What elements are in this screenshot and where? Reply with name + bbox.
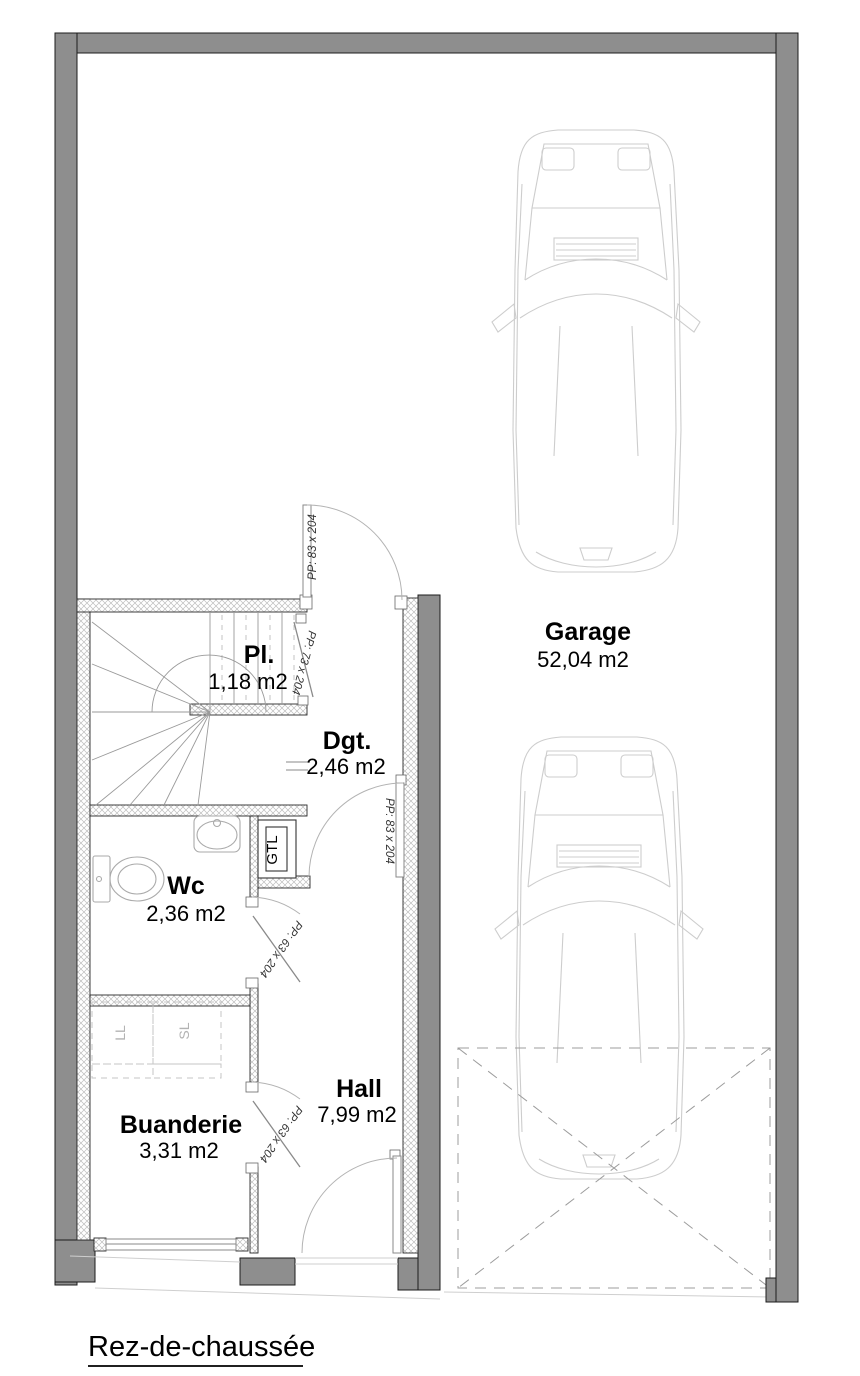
outer-wall-top [55,33,798,53]
car-top-view-2 [495,737,703,1179]
room-label-garage: Garage [545,618,631,646]
room-area-dgt: 2,46 m2 [306,754,386,779]
door-label-laundry: PP: 63 x 204 [257,1103,305,1164]
interior-walls [77,598,418,1253]
room-area-buanderie: 3,31 m2 [139,1138,219,1163]
washing-machine-label: LL [112,1025,128,1041]
outer-wall-right-notch [766,1278,776,1302]
laundry-right-wall [250,1167,258,1253]
toilet-icon [93,856,164,902]
gtl-label: GTL [264,835,281,864]
dryer-label: SL [176,1022,192,1039]
outer-wall-right [776,33,798,1302]
entry-threshold [295,1258,398,1264]
wall-stub-bottom-middle [240,1258,295,1285]
door-label-garage-entry: PP: 83 x 204 [307,514,319,580]
room-area-garage: 52,04 m2 [537,647,629,672]
ground-line [95,1288,440,1299]
room-label-hall: Hall [336,1075,382,1103]
wall-stub-bottom-left [55,1240,95,1282]
floor-plan-drawing: Pl. 1,18 m2 Dgt. 2,46 m2 Wc 2,36 m2 Buan… [0,0,860,1376]
entry-door [302,1150,401,1253]
room-area-wc: 2,36 m2 [146,901,226,926]
floor-plan-page: Pl. 1,18 m2 Dgt. 2,46 m2 Wc 2,36 m2 Buan… [0,0,860,1376]
wc-right-wall-lower [250,984,258,1082]
room-label-pl: Pl. [244,641,275,669]
sink-icon [194,816,240,852]
garage-door-zone [444,1048,772,1297]
room-area-pl: 1,18 m2 [208,669,288,694]
stair-wc-wall [90,805,307,816]
door-label-closet: PP: 73 x 204 [289,629,318,696]
section-tick [286,762,308,770]
room-area-hall: 7,99 m2 [317,1102,397,1127]
garage-separating-wall [418,595,440,1290]
outer-wall-left [55,33,77,1285]
wc-laundry-wall [90,995,250,1006]
window-jamb-left [94,1238,106,1251]
plan-title: Rez-de-chaussée [88,1331,315,1363]
wall-lining-left [77,599,90,1240]
room-label-wc: Wc [167,872,205,900]
unit-top-wall [77,599,307,612]
room-label-buanderie: Buanderie [120,1111,242,1139]
window-jamb-right [236,1238,248,1251]
car-top-view-1 [492,130,700,572]
room-label-dgt: Dgt. [323,727,372,755]
door-label-dgt-hall: PP: 83 x 204 [383,798,395,864]
wc-right-wall-upper [250,816,258,897]
door-label-wc: PP: 63 x 204 [257,918,305,979]
wall-lining-garage-side [403,598,418,1253]
